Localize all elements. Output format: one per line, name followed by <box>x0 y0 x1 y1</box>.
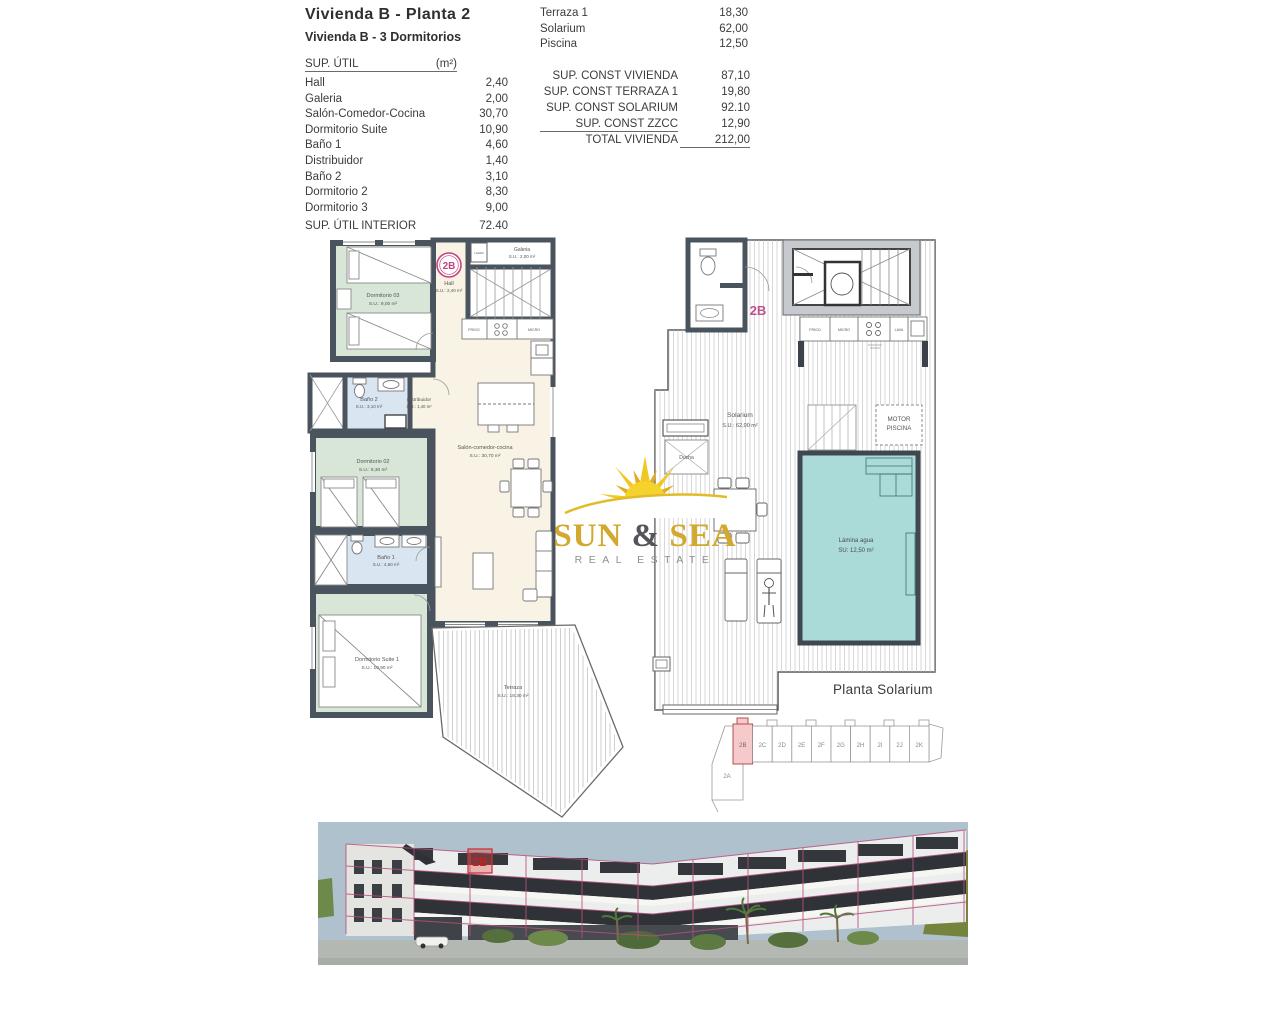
logo-word-sun: SUN <box>553 518 622 554</box>
svg-text:FRIGO: FRIGO <box>468 328 480 332</box>
svg-text:Dormitorio Suite 1: Dormitorio Suite 1 <box>355 657 399 663</box>
svg-text:2H: 2H <box>857 743 865 749</box>
svg-text:S.U.: 8,30 m²: S.U.: 8,30 m² <box>359 467 388 473</box>
svg-text:LAVA: LAVA <box>895 328 904 332</box>
svg-text:Baño 2: Baño 2 <box>360 397 377 403</box>
svg-text:2I: 2I <box>877 743 882 749</box>
terrace-decking <box>435 628 619 813</box>
svg-text:2E: 2E <box>798 743 805 749</box>
page-subtitle: Vivienda B - 3 Dormitorios <box>305 30 461 44</box>
svg-text:Baño 1: Baño 1 <box>377 555 394 561</box>
logo-wordmark: SUN & SEA <box>545 521 745 551</box>
table-row: Terraza 118,30 <box>540 6 750 22</box>
post <box>922 341 928 367</box>
table-row: Galeria2,00 <box>305 92 510 108</box>
post <box>798 341 804 367</box>
table-row: SUP. CONST SOLARIUM92.10 <box>540 100 750 116</box>
table-header-label: SUP. ÚTIL <box>305 58 358 70</box>
table-row: Salón-Comedor-Cocina30,70 <box>305 107 510 123</box>
trees-left <box>318 878 334 918</box>
road <box>318 958 968 965</box>
svg-text:S.U.: 2,40 m²: S.U.: 2,40 m² <box>436 288 463 293</box>
svg-text:S.U.: 10,90 m²: S.U.: 10,90 m² <box>362 665 393 671</box>
svg-text:S.U.: 2,00 m²: S.U.: 2,00 m² <box>509 254 536 259</box>
sun-and-sea-logo: SUN & SEA REAL ESTATE <box>545 446 745 566</box>
svg-text:FRIGO: FRIGO <box>809 328 821 332</box>
table-row: Baño 14,60 <box>305 138 510 154</box>
toilet-icon <box>700 249 716 256</box>
table-row: SUP. CONST VIVIENDA87,10 <box>540 68 750 84</box>
coffee-table-icon <box>473 553 493 589</box>
page-title: Vivienda B - Planta 2 <box>305 6 471 24</box>
svg-text:Lámina agua: Lámina agua <box>839 538 874 544</box>
svg-text:Dormitorio 03: Dormitorio 03 <box>366 293 399 299</box>
table-row: Piscina12,50 <box>540 37 750 53</box>
useful-area-table: SUP. ÚTIL (m²) Hall2,40 Galeria2,00 Saló… <box>305 58 510 235</box>
logo-tagline: REAL ESTATE <box>545 554 745 566</box>
unit-badge: 2B <box>437 253 461 277</box>
table-total-row: TOTAL VIVIENDA212,00 <box>540 132 750 148</box>
table-row: Hall2,40 <box>305 76 510 92</box>
tv-bench-icon <box>435 537 441 587</box>
svg-text:Galeria: Galeria <box>514 247 530 253</box>
table-row: Solarium62,00 <box>540 22 750 38</box>
logo-ampersand: & <box>632 518 661 554</box>
svg-text:Solarium: Solarium <box>727 412 753 419</box>
solarium-caption: Planta Solarium <box>833 682 983 697</box>
table-row: Baño 23,10 <box>305 170 510 186</box>
unit-label: 2B <box>750 303 767 318</box>
logo-word-sea: SEA <box>669 518 736 554</box>
table-row: Dormitorio 28,30 <box>305 185 510 201</box>
table-total-row: SUP. ÚTIL INTERIOR72.40 <box>305 219 510 235</box>
svg-text:S.U.: 18,30 m²: S.U.: 18,30 m² <box>498 693 529 699</box>
svg-text:MICRO: MICRO <box>838 328 850 332</box>
table-row: SUP. CONST ZZCC12,90 <box>540 116 750 132</box>
svg-text:2B: 2B <box>739 743 746 749</box>
svg-text:LAVAD: LAVAD <box>474 251 484 255</box>
stairwell-block <box>783 240 920 315</box>
locator-units <box>753 720 929 762</box>
toilet-icon <box>351 535 363 554</box>
unit-locator-map: 2B 2C 2D 2E 2F 2G 2H 2I 2J 2K 2A <box>695 712 965 812</box>
svg-text:MOTOR: MOTOR <box>888 416 911 423</box>
shower-icon <box>315 535 347 585</box>
table-row: Dormitorio 39,00 <box>305 201 510 217</box>
svg-text:PISCINA: PISCINA <box>887 425 913 432</box>
svg-text:2D: 2D <box>778 743 786 749</box>
svg-text:S.U.: 1,40 m²: S.U.: 1,40 m² <box>406 404 432 409</box>
sun-icon <box>545 446 745 518</box>
table-row: SUP. CONST TERRAZA 119,80 <box>540 84 750 100</box>
svg-text:2A: 2A <box>723 774 730 780</box>
svg-text:S.U.: 30,70 m²: S.U.: 30,70 m² <box>470 453 501 459</box>
svg-text:2C: 2C <box>759 743 767 749</box>
table-header-unit: (m²) <box>436 58 457 70</box>
table-row: Dormitorio Suite10,90 <box>305 123 510 139</box>
svg-text:MICRO: MICRO <box>528 328 540 332</box>
svg-text:Distribuidor: Distribuidor <box>407 397 432 403</box>
svg-text:S.U.: 4,60 m²: S.U.: 4,60 m² <box>373 562 400 567</box>
svg-text:S.U.: 3,10 m²: S.U.: 3,10 m² <box>356 404 383 409</box>
svg-text:2J: 2J <box>896 743 902 749</box>
svg-text:2F: 2F <box>818 743 825 749</box>
building-render: 2B <box>318 822 968 965</box>
floorplan-document: Vivienda B - Planta 2 Vivienda B - 3 Dor… <box>0 0 1280 1024</box>
exterior-area-table: Terraza 118,30 Solarium62,00 Piscina12,5… <box>540 6 750 53</box>
svg-text:S.U.: 9,00 m²: S.U.: 9,00 m² <box>369 301 398 307</box>
svg-text:2K: 2K <box>916 743 923 749</box>
svg-text:S.U.: 62,00 m²: S.U.: 62,00 m² <box>722 423 758 429</box>
locator-unit-highlight <box>733 718 753 764</box>
render-unit-marker: 2B <box>468 849 492 873</box>
svg-text:Dormitorio 02: Dormitorio 02 <box>356 459 389 465</box>
built-area-table: SUP. CONST VIVIENDA87,10 SUP. CONST TERR… <box>540 68 750 148</box>
svg-text:2G: 2G <box>837 743 845 749</box>
svg-text:2B: 2B <box>472 855 488 869</box>
table-header: SUP. ÚTIL (m²) <box>305 58 457 72</box>
toilet-icon <box>353 378 366 398</box>
svg-text:Terraza: Terraza <box>504 685 523 691</box>
svg-text:Salón-comedor-cocina: Salón-comedor-cocina <box>457 445 513 451</box>
left-end-wall <box>346 844 414 936</box>
svg-text:Hall: Hall <box>444 281 453 287</box>
svg-text:SU: 12,50 m²: SU: 12,50 m² <box>838 548 873 554</box>
svg-text:2B: 2B <box>443 261 456 272</box>
kitchen-island <box>478 383 534 432</box>
table-row: Distribuidor1,40 <box>305 154 510 170</box>
